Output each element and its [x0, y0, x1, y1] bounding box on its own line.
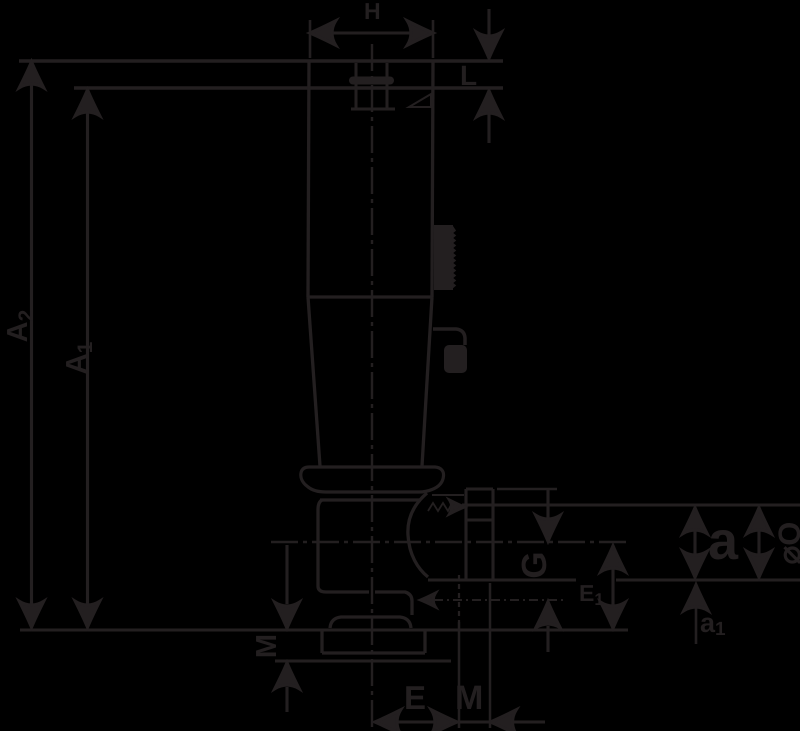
svg-text:L: L [460, 60, 477, 91]
svg-text:M: M [251, 634, 283, 658]
svg-text:E: E [404, 679, 426, 716]
svg-text:A1: A1 [61, 341, 97, 374]
svg-text:H: H [364, 0, 381, 24]
svg-text:M: M [455, 679, 483, 717]
svg-text:⌀O: ⌀O [772, 522, 800, 565]
svg-text:a: a [708, 511, 739, 571]
svg-text:E1: E1 [579, 580, 604, 609]
svg-text:a1: a1 [700, 608, 726, 640]
svg-text:G: G [515, 551, 554, 578]
svg-text:A2: A2 [2, 310, 38, 343]
